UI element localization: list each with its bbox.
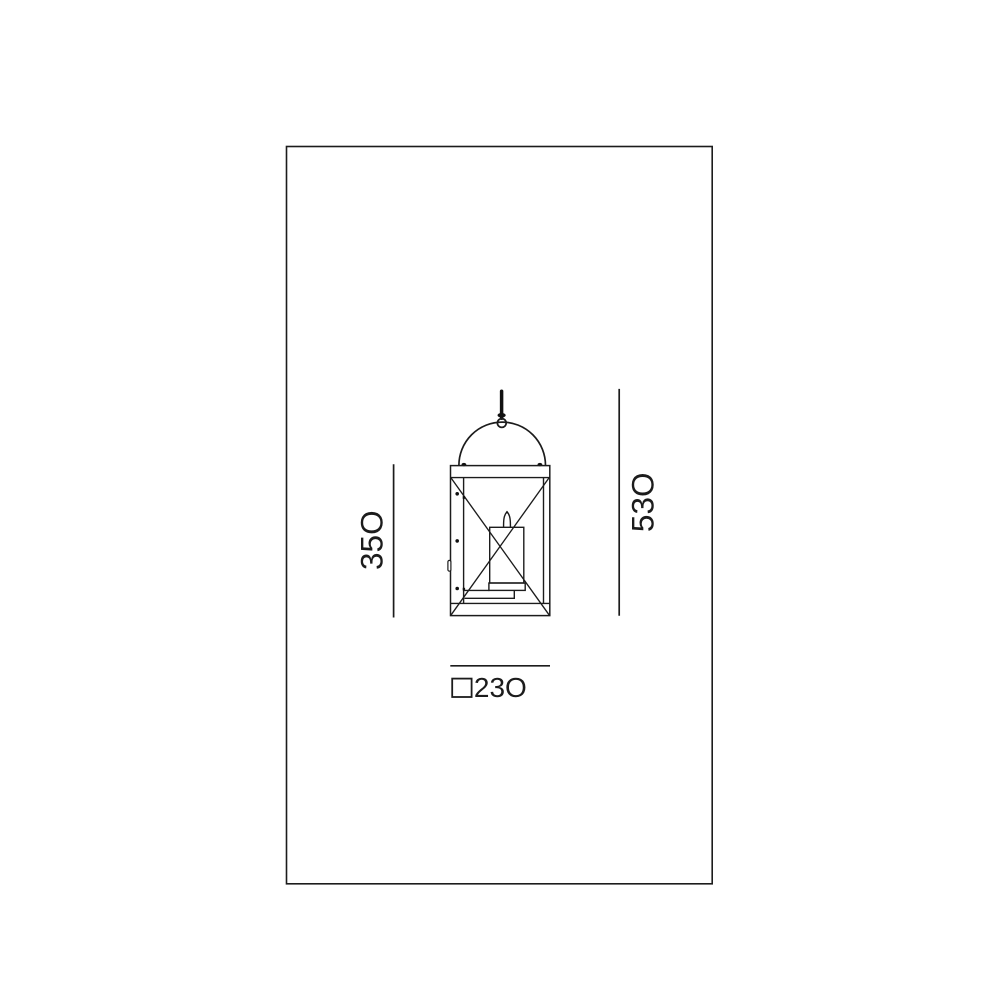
svg-text:53O: 53O bbox=[625, 473, 661, 533]
svg-text:23O: 23O bbox=[474, 672, 527, 703]
svg-text:35O: 35O bbox=[354, 510, 390, 570]
